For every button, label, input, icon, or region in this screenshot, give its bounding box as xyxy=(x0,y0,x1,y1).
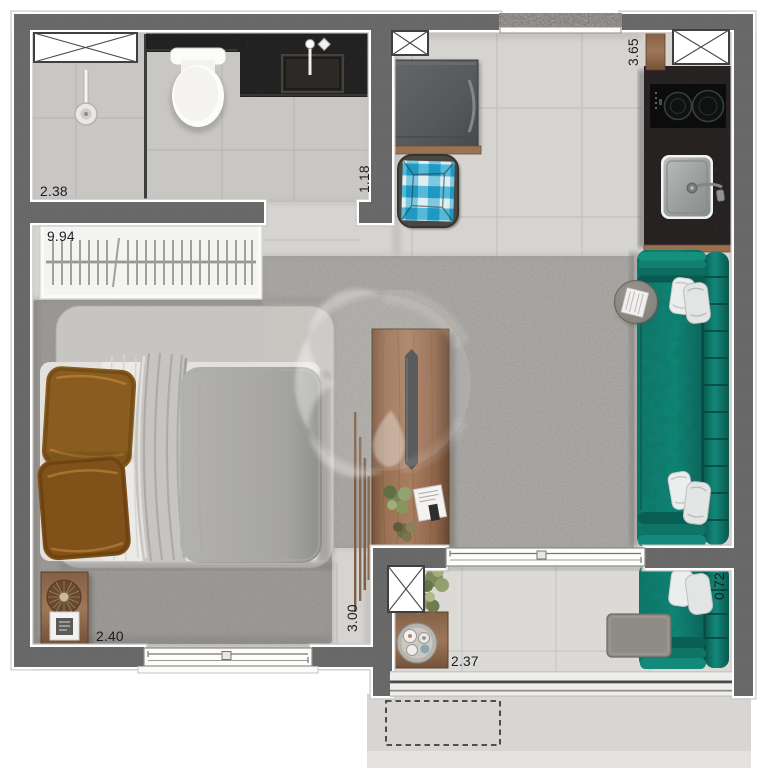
svg-text:3.65: 3.65 xyxy=(626,38,641,66)
svg-text:9.94: 9.94 xyxy=(47,229,75,244)
svg-text:3.00: 3.00 xyxy=(345,604,360,632)
svg-text:1.18: 1.18 xyxy=(357,165,372,193)
svg-text:2.38: 2.38 xyxy=(40,184,68,199)
svg-text:2.37: 2.37 xyxy=(451,654,479,669)
svg-text:2.40: 2.40 xyxy=(96,629,124,644)
svg-text:0.72: 0.72 xyxy=(712,572,727,600)
